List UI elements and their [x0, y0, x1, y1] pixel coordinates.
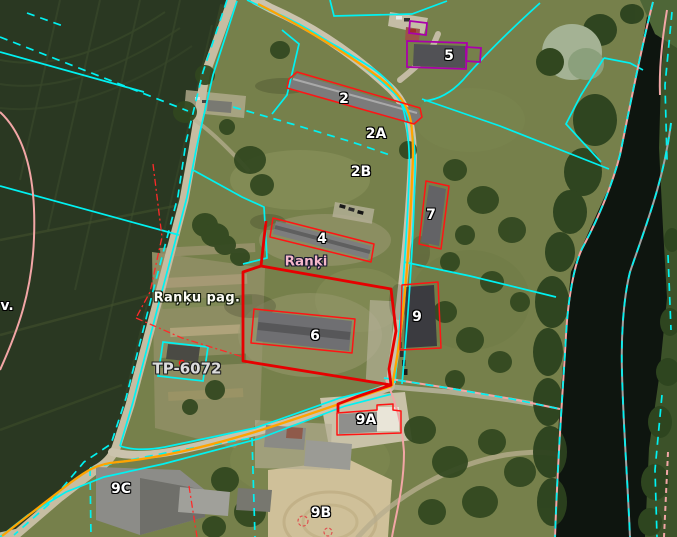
map-viewport[interactable]: 2 2A 2B 4 5 6 7 9 9A 9B 9C Raņķi Raņķu p…: [0, 0, 677, 537]
label-partial-v: v.: [0, 299, 13, 313]
aerial-map-svg: [0, 0, 677, 537]
label-area-2a: 2A: [366, 127, 387, 141]
label-building-6: 6: [310, 329, 320, 343]
label-building-5: 5: [444, 49, 454, 63]
label-building-9: 9: [412, 310, 422, 324]
label-building-9a: 9A: [356, 413, 377, 427]
label-transformer-tp-6072: TP-6072: [153, 362, 222, 377]
label-parish-ranku-pag: Raņķu pag.: [154, 292, 241, 305]
label-building-4: 4: [317, 232, 327, 246]
label-building-9c: 9C: [111, 482, 131, 496]
label-village-ranki: Raņķi: [285, 255, 328, 269]
label-building-7: 7: [426, 208, 436, 222]
label-building-2: 2: [339, 92, 349, 106]
label-building-9b: 9B: [311, 506, 331, 520]
label-area-2b: 2B: [351, 165, 371, 179]
